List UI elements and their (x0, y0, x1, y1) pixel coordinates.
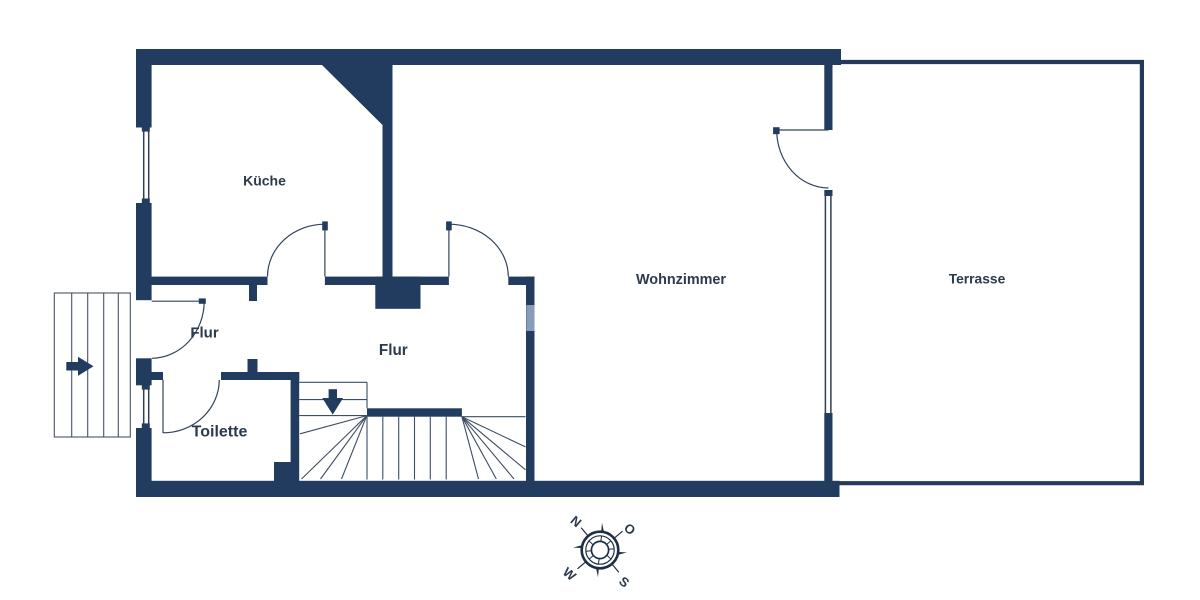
svg-text:Toilette: Toilette (192, 424, 248, 441)
svg-text:Flur: Flur (190, 324, 218, 341)
svg-text:Wohnzimmer: Wohnzimmer (636, 272, 726, 288)
svg-text:Flur: Flur (379, 342, 408, 359)
svg-text:Terrasse: Terrasse (949, 272, 1006, 287)
svg-text:Küche: Küche (243, 173, 286, 189)
